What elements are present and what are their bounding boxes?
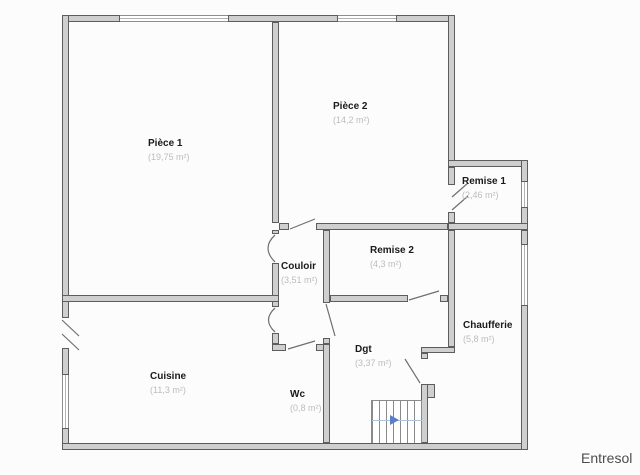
room-label-piece-1: Pièce 1 (19,75 m²)	[148, 138, 190, 162]
wall-segment	[228, 15, 338, 22]
room-area: (14,2 m²)	[333, 115, 370, 125]
wall-segment	[396, 15, 455, 22]
wall-segment	[448, 15, 455, 167]
room-area: (5,8 m²)	[463, 334, 512, 344]
window	[521, 245, 528, 305]
window	[120, 15, 228, 22]
wall-segment	[448, 160, 528, 167]
wall-segment	[448, 212, 455, 223]
wall-segment	[421, 353, 428, 359]
room-label-cuisine: Cuisine (11,3 m²)	[150, 371, 186, 395]
room-label-dgt: Dgt (3,37 m²)	[355, 344, 392, 368]
wall-segment	[448, 230, 455, 347]
wall-segment	[279, 223, 289, 230]
wall-segment	[330, 295, 408, 302]
room-name: Cuisine	[150, 371, 186, 383]
room-area: (0,8 m²)	[290, 403, 322, 413]
room-name: Pièce 2	[333, 101, 370, 113]
room-name: Dgt	[355, 344, 392, 356]
wall-segment	[323, 230, 330, 303]
room-label-wc: Wc (0,8 m²)	[290, 389, 322, 413]
wall-segment	[521, 160, 528, 182]
room-area: (11,3 m²)	[150, 385, 186, 395]
room-label-remise-1: Remise 1 (2,46 m²)	[462, 176, 506, 200]
room-label-couloir: Couloir (3,51 m²)	[281, 261, 318, 285]
level-label: Entresol	[581, 450, 632, 466]
wall-segment	[440, 295, 448, 302]
wall-segment	[521, 230, 528, 245]
wall-segment	[448, 223, 528, 230]
wall-segment	[272, 333, 279, 344]
wall-segment	[62, 15, 69, 318]
room-name: Chaufferie	[463, 320, 512, 332]
wall-segment	[316, 223, 448, 230]
wall-segment	[62, 443, 528, 450]
room-area: (3,37 m²)	[355, 358, 392, 368]
wall-segment	[272, 22, 279, 223]
wall-segment	[521, 305, 528, 450]
room-label-chaufferie: Chaufferie (5,8 m²)	[463, 320, 512, 344]
wall-segment	[427, 384, 435, 398]
window	[521, 182, 528, 207]
stair-direction-arrow-icon	[390, 415, 399, 425]
wall-segment	[62, 348, 69, 375]
wall-segment	[62, 295, 279, 302]
floor-plan: Pièce 1 (19,75 m²) Pièce 2 (14,2 m²) Rem…	[0, 0, 640, 475]
room-name: Wc	[290, 389, 322, 401]
wall-segment	[323, 344, 330, 443]
room-area: (2,46 m²)	[462, 190, 506, 200]
wall-segment	[448, 167, 455, 185]
wall-segment	[272, 230, 279, 234]
room-name: Couloir	[281, 261, 318, 273]
staircase	[371, 400, 422, 443]
window	[338, 15, 396, 22]
room-label-piece-2: Pièce 2 (14,2 m²)	[333, 101, 370, 125]
room-label-remise-2: Remise 2 (4,3 m²)	[370, 245, 414, 269]
room-area: (4,3 m²)	[370, 259, 414, 269]
wall-segment	[272, 344, 286, 351]
room-name: Pièce 1	[148, 138, 190, 150]
wall-segment	[62, 15, 120, 22]
room-name: Remise 1	[462, 176, 506, 188]
window	[62, 375, 69, 428]
room-area: (3,51 m²)	[281, 275, 318, 285]
room-name: Remise 2	[370, 245, 414, 257]
room-area: (19,75 m²)	[148, 152, 190, 162]
